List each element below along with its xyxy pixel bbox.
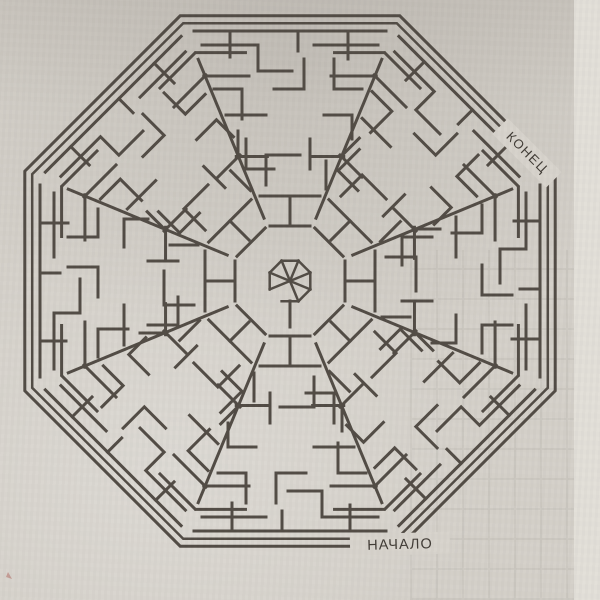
maze-illustration: КОНЕЦ НАЧАЛО: [0, 0, 600, 600]
book-page-photo: КОНЕЦ НАЧАЛО: [0, 0, 600, 600]
red-ink-speck: [6, 572, 12, 579]
maze-drawing: [21, 12, 558, 549]
maze-end-label-group: КОНЕЦ: [492, 118, 561, 187]
maze-start-label: НАЧАЛО: [367, 536, 433, 554]
page-edge-strip: [574, 0, 600, 600]
maze-start-label-group: НАЧАЛО: [350, 532, 451, 557]
